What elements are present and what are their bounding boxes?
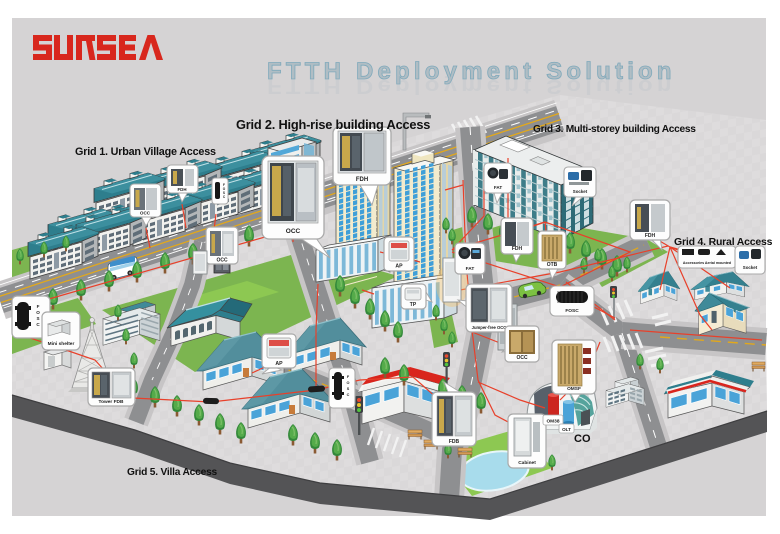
- svg-text:TP: TP: [410, 302, 417, 308]
- svg-text:FAT: FAT: [494, 185, 503, 190]
- svg-text:S: S: [347, 387, 350, 391]
- svg-text:FDH: FDH: [512, 246, 523, 252]
- svg-text:CO: CO: [574, 433, 591, 445]
- svg-text:FDH: FDH: [645, 233, 656, 239]
- svg-text:Grid 2. High-rise building Acc: Grid 2. High-rise building Access: [236, 117, 430, 132]
- svg-text:FOSC: FOSC: [565, 308, 579, 314]
- svg-text:Grid 1. Urban Village Access: Grid 1. Urban Village Access: [75, 146, 216, 158]
- svg-text:O: O: [347, 381, 350, 385]
- svg-text:FDB: FDB: [449, 439, 460, 445]
- svg-text:OCC: OCC: [286, 228, 301, 235]
- svg-text:S: S: [36, 316, 39, 321]
- svg-text:OCC: OCC: [516, 355, 528, 361]
- svg-text:OMSF: OMSF: [567, 386, 581, 392]
- svg-text:OLT: OLT: [562, 427, 571, 432]
- svg-text:OCC: OCC: [140, 211, 151, 216]
- svg-text:Socket: Socket: [573, 189, 588, 194]
- svg-text:FDH: FDH: [356, 177, 368, 183]
- svg-text:OCC: OCC: [216, 258, 228, 264]
- svg-text:F: F: [37, 304, 40, 309]
- svg-text:Grid 5. Villa Access: Grid 5. Villa Access: [127, 467, 218, 478]
- svg-text:Tower FDB: Tower FDB: [99, 399, 124, 405]
- svg-text:AP: AP: [275, 361, 283, 367]
- svg-text:Grid 4. Rural Access: Grid 4. Rural Access: [674, 236, 773, 248]
- svg-text:Accessories Aerial mounted: Accessories Aerial mounted: [683, 261, 731, 265]
- svg-text:Socket: Socket: [743, 265, 758, 270]
- svg-text:O: O: [36, 310, 40, 315]
- svg-text:OTB: OTB: [547, 262, 558, 268]
- svg-text:Mini shelter: Mini shelter: [48, 341, 75, 347]
- svg-text:FTTH Deployment Solution: FTTH Deployment Solution: [267, 75, 676, 98]
- svg-text:C: C: [347, 393, 350, 397]
- svg-text:Jumper-free OCC: Jumper-free OCC: [472, 325, 507, 330]
- svg-text:OM38: OM38: [546, 419, 559, 425]
- svg-text:AP: AP: [395, 264, 403, 270]
- svg-text:Cabinet: Cabinet: [518, 460, 536, 466]
- svg-text:FAT: FAT: [466, 266, 475, 272]
- svg-text:Grid 3. Multi-storey building: Grid 3. Multi-storey building Access: [533, 124, 696, 135]
- svg-text:FDH: FDH: [177, 187, 186, 192]
